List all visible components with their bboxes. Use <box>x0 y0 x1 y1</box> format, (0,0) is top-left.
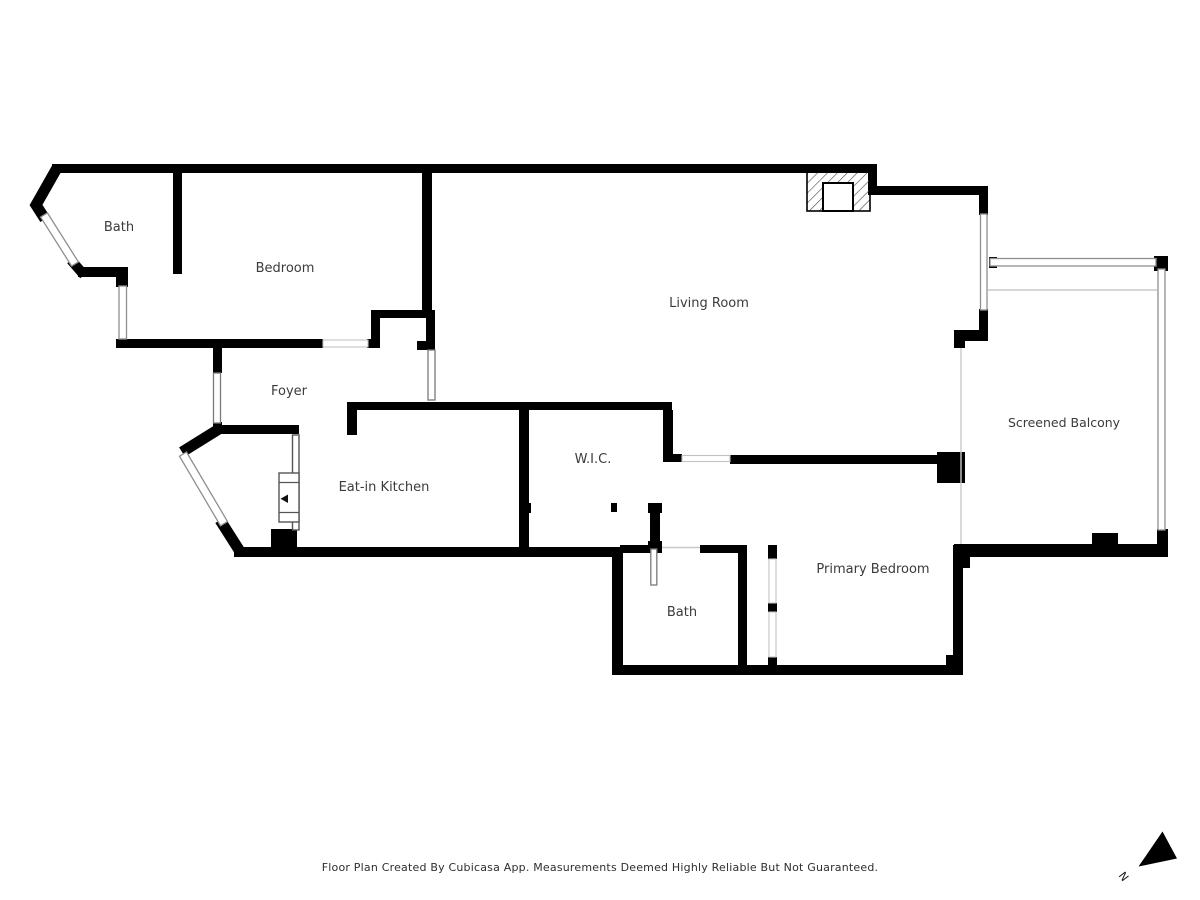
compass: N <box>1117 832 1177 884</box>
wall-bath2-top-right <box>700 545 747 553</box>
opening-living-hall <box>682 456 730 462</box>
room-label-foyer: Foyer <box>271 384 308 399</box>
wall-closet-left-stub <box>367 339 380 348</box>
sliding-panel-primary-lower <box>769 612 776 657</box>
walls <box>36 164 1168 675</box>
door-entry-leaf <box>214 373 221 423</box>
room-label-wic: W.I.C. <box>575 452 612 467</box>
window-balcony-top <box>990 259 1156 267</box>
wall-closet-right-foot <box>417 341 435 350</box>
wall-main-bottom <box>234 547 620 557</box>
wall-primary-jamb-top <box>768 545 777 559</box>
kitchen-appliance <box>279 473 299 522</box>
fixtures <box>279 172 870 530</box>
wall-lr-right-upper <box>979 195 988 215</box>
wall-bath-corner <box>116 267 128 287</box>
wall-kitchen-wic-divider <box>519 402 529 547</box>
wall-living-bottom <box>730 455 940 464</box>
wall-foyer-top <box>116 339 323 348</box>
floor-plan-canvas: Bath Bedroom Living Room Foyer Eat-in Ki… <box>0 0 1200 900</box>
wall-wic-right <box>663 410 673 462</box>
wall-topleft-diagonal <box>36 168 57 219</box>
wall-bedroom-living-divider <box>422 170 432 310</box>
wall-kitchen-top-stub <box>347 402 357 435</box>
wall-balcony-bottom-ext <box>954 544 970 568</box>
wall-south-bottom <box>612 665 963 675</box>
opening-bedroom-south <box>323 340 368 347</box>
room-label-bath-upper: Bath <box>104 220 134 235</box>
room-label-bath-lower: Bath <box>667 605 697 620</box>
wall-bath2-left <box>612 547 623 675</box>
wall-wic-right-stub <box>673 454 682 462</box>
wall-bath2-right <box>738 553 747 665</box>
wall-balcony-br-block <box>1157 529 1168 551</box>
wall-primary-jamb-mid <box>768 603 777 612</box>
door-bath2-leaf <box>651 549 657 585</box>
room-label-living-room: Living Room <box>669 296 749 311</box>
wall-lr-step-v <box>954 330 965 348</box>
wall-primary-se-step <box>946 655 963 675</box>
wall-top <box>52 164 877 173</box>
wall-bath-bedroom-divider <box>173 173 182 274</box>
window-bath-diagonal <box>41 213 79 266</box>
wall-foyer-south <box>216 425 299 434</box>
window-balcony-right <box>1158 269 1165 530</box>
wall-hall-bath-head <box>648 503 662 513</box>
floor-plan-page: Bath Bedroom Living Room Foyer Eat-in Ki… <box>0 0 1200 900</box>
room-label-screened-balcony: Screened Balcony <box>1008 415 1121 430</box>
window-entry-diagonal <box>180 452 228 526</box>
window-bath-left <box>119 286 127 339</box>
windows <box>41 213 1165 530</box>
sliding-panel-primary-upper <box>769 559 776 603</box>
wall-entry-diagonal-upper <box>182 429 219 452</box>
wall-top-right <box>868 186 988 195</box>
wall-kitchen-top <box>347 402 672 410</box>
room-label-primary-bedroom: Primary Bedroom <box>816 562 929 577</box>
room-label-eat-in-kitchen: Eat-in Kitchen <box>339 480 430 495</box>
fireplace-box <box>823 183 853 211</box>
room-label-bedroom: Bedroom <box>256 261 315 276</box>
wall-foyer-left <box>213 348 222 373</box>
door-foyer-living-leaf <box>428 350 435 400</box>
wall-balcony-bottom <box>954 544 1168 557</box>
wall-wic-opening-jamb <box>611 503 617 512</box>
wall-divider-jamb <box>523 503 531 513</box>
window-living-right <box>981 214 988 310</box>
disclaimer-text: Floor Plan Created By Cubicasa App. Meas… <box>0 861 1200 874</box>
wall-balcony-notch <box>1092 533 1118 545</box>
wall-closet-top <box>371 310 435 318</box>
